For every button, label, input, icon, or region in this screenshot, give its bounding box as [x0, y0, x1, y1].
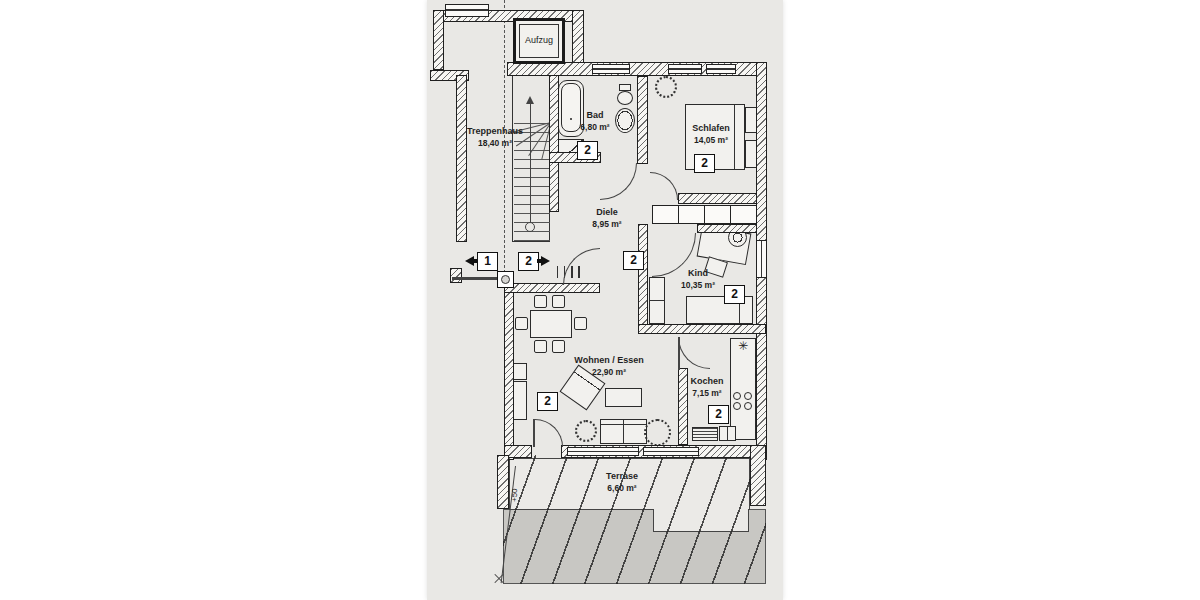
dining-table	[530, 310, 572, 338]
wall-kind-south	[638, 324, 766, 334]
room-label-treppenhaus: Treppenhaus 18,40 m²	[455, 125, 535, 149]
door-arc-terrace	[535, 419, 563, 447]
room-name: Diele	[577, 206, 637, 218]
unit-badge-kochen: 2	[708, 405, 729, 424]
stove-burner	[744, 402, 752, 410]
unit-badge-diele: 2	[623, 251, 644, 270]
wall-schlafen-south	[678, 193, 757, 204]
room-area: 6,80 m²	[567, 121, 623, 133]
unit-badge-schlafen: 2	[694, 154, 715, 173]
wall-wohnen-west	[504, 283, 514, 460]
toilet-bowl	[617, 91, 633, 105]
room-label-kind: Kind 10,35 m²	[670, 267, 726, 291]
room-name: Terrase	[584, 470, 660, 482]
wall-terrace-right	[750, 445, 766, 506]
room-label-schlafen: Schlafen 14,05 m²	[671, 122, 751, 146]
entry-arrow-left-stem	[473, 259, 478, 263]
built-in-wardrobe	[652, 205, 757, 224]
door-arc-kochen	[678, 337, 710, 369]
shelf	[649, 277, 665, 324]
dining-chair	[552, 340, 565, 353]
kitchen-sink	[719, 426, 736, 441]
wall-stairwell-right	[549, 75, 559, 212]
dining-chair	[552, 295, 565, 308]
room-label-wohnen: Wohnen / Essen 22,90 m²	[549, 354, 669, 378]
door-arc-diele	[563, 248, 600, 285]
room-name: Kochen	[679, 375, 735, 387]
coffee-table	[605, 388, 642, 407]
door-leaf-terrace	[533, 419, 535, 447]
room-label-diele: Diele 8,95 m²	[577, 206, 637, 230]
entry-arrow-right-stem	[537, 259, 542, 263]
entry-wall-line	[452, 277, 497, 280]
room-label-terrasse: Terrase 6,60 m²	[584, 470, 660, 494]
window-kind	[756, 240, 767, 278]
floorplan-scan: +50 ✳	[427, 0, 783, 600]
room-name: Wohnen / Essen	[549, 354, 669, 366]
wall-terrace-left	[497, 455, 509, 509]
wall-bad-schlafen	[637, 76, 648, 164]
toilet-tank	[619, 84, 631, 91]
wall-kind-north	[697, 224, 757, 233]
door-arc-schlafen	[650, 172, 678, 200]
stove-burner	[744, 392, 752, 400]
door-leaf-kochen	[678, 337, 680, 370]
sideboard	[513, 363, 527, 380]
unit-badge-wohnen: 2	[537, 392, 558, 411]
window-schlafen	[668, 64, 702, 74]
room-name: Bad	[567, 109, 623, 121]
wall-stairwell-left	[456, 75, 467, 242]
plant	[655, 76, 677, 98]
room-name: Kind	[670, 267, 726, 279]
wall-kind-west	[638, 224, 648, 334]
unit-badge-bad: 2	[577, 141, 598, 160]
window-bad	[592, 64, 630, 74]
room-area: 14,05 m²	[671, 134, 751, 146]
room-label-kochen: Kochen 7,15 m²	[679, 375, 735, 399]
staircase	[512, 75, 550, 242]
freezer-symbol: ✳	[733, 339, 753, 353]
plant	[644, 419, 671, 446]
unit-badge-entry-2: 2	[518, 252, 539, 271]
room-area: 10,35 m²	[670, 279, 726, 291]
room-area: 18,40 m²	[455, 137, 535, 149]
stair-walk-line	[530, 104, 531, 222]
stair-walkline-start	[525, 222, 535, 232]
room-area: 22,90 m²	[549, 366, 669, 378]
room-name: Schlafen	[671, 122, 751, 134]
unit-badge-entry-1: 1	[477, 252, 498, 271]
unit-badge-kind: 2	[724, 285, 745, 304]
dining-chair	[574, 317, 587, 330]
room-name: Treppenhaus	[455, 125, 535, 137]
stair-direction-arrow	[526, 96, 534, 104]
level-marker-label: +50	[510, 466, 524, 502]
entry-arrow-right-icon	[541, 256, 550, 266]
dining-chair	[534, 340, 547, 353]
stove-burner	[733, 402, 741, 410]
elevator-label: Aufzug	[513, 35, 565, 45]
window	[445, 4, 489, 17]
wall	[572, 10, 584, 63]
room-area: 8,95 m²	[577, 218, 637, 230]
room-area: 6,60 m²	[584, 482, 660, 494]
window-schlafen	[706, 64, 736, 74]
wall	[433, 10, 444, 70]
window-wohnen	[567, 447, 639, 456]
dining-chair	[534, 295, 547, 308]
dining-chair	[515, 317, 528, 330]
door-arc-bad	[600, 163, 637, 200]
room-label-bad: Bad 6,80 m²	[567, 109, 623, 133]
dishwasher	[692, 427, 718, 441]
wall-entry-stub	[450, 268, 462, 283]
plant	[575, 420, 597, 442]
window-kochen	[643, 447, 699, 456]
entry-column-circle	[501, 275, 510, 284]
sofa	[600, 419, 647, 444]
room-area: 7,15 m²	[679, 387, 735, 399]
shelf	[513, 381, 527, 420]
